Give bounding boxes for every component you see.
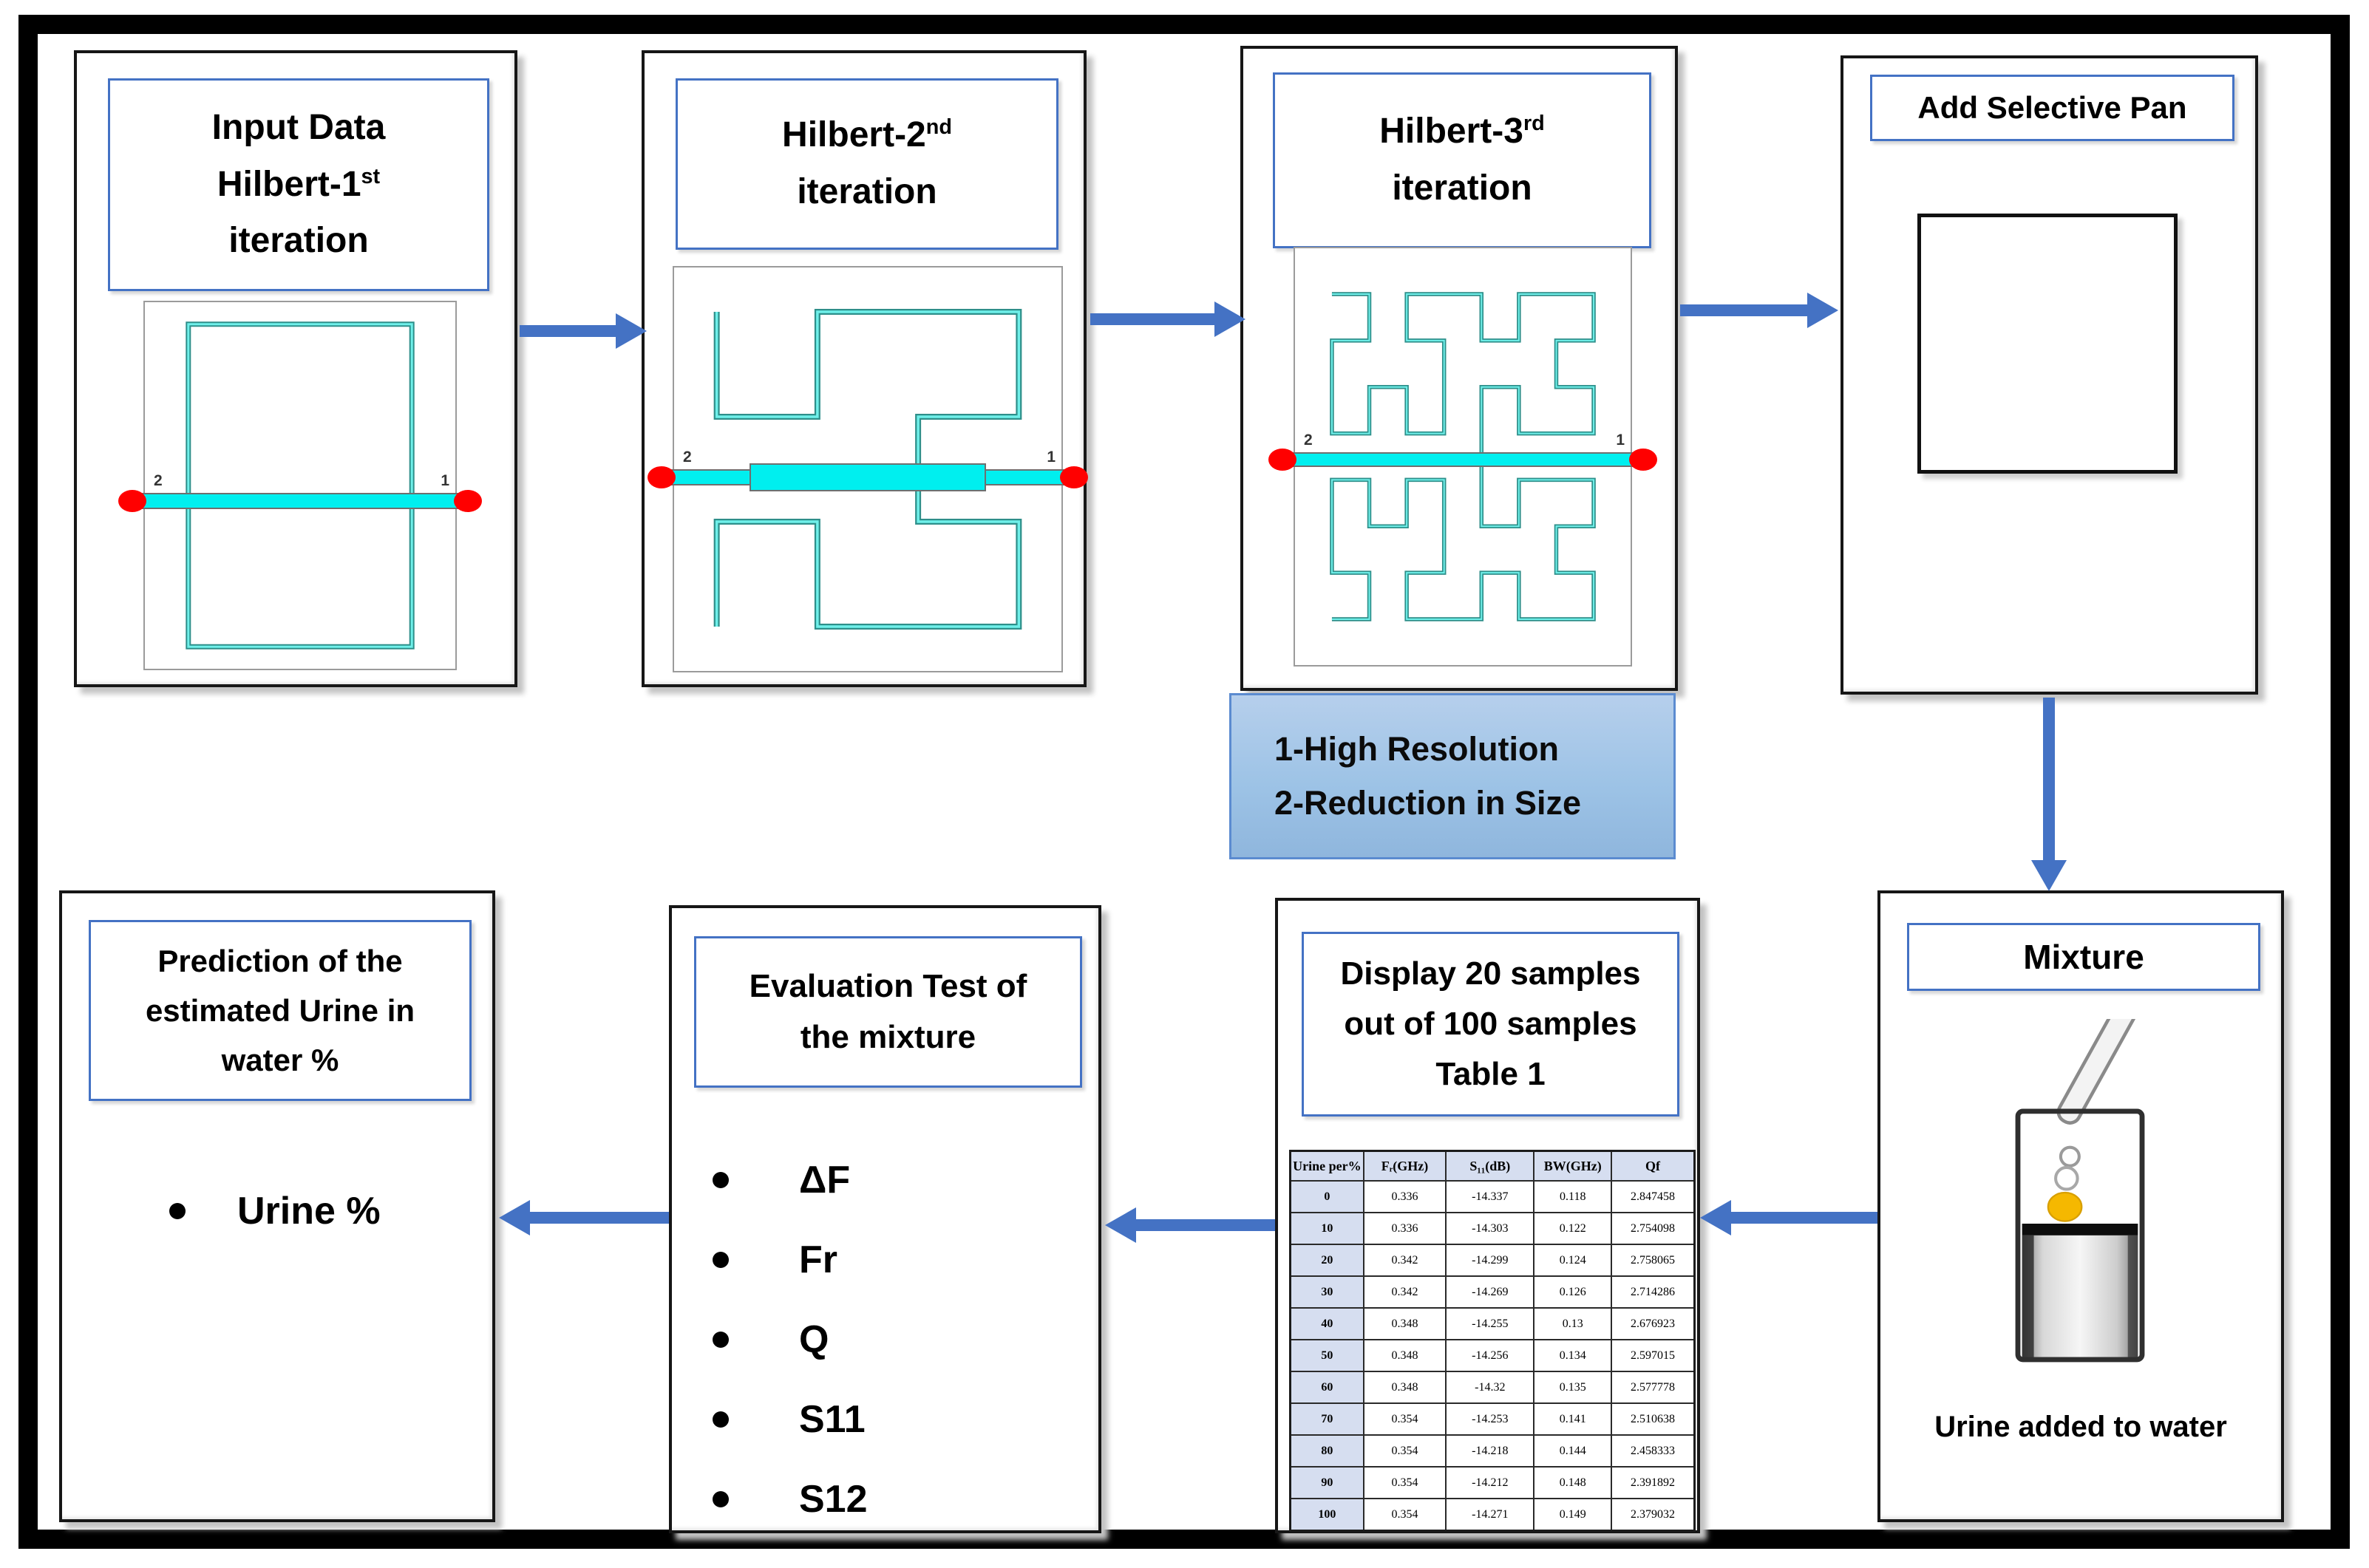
prediction-title: Prediction of the estimated Urine in wat… — [89, 920, 472, 1101]
list-item: Q — [713, 1318, 868, 1362]
table-cell: 0.149 — [1534, 1499, 1611, 1531]
list-item-label: Fr — [799, 1238, 837, 1282]
table-cell: 0.348 — [1364, 1340, 1446, 1371]
samples-title-line1: Display 20 samples — [1304, 949, 1677, 999]
port-dot-left — [648, 466, 676, 488]
table-cell: 0.348 — [1364, 1371, 1446, 1403]
table-cell: -14.255 — [1446, 1308, 1534, 1340]
flowchart-canvas: Input Data Hilbert-1st iteration 2 1 Hil… — [0, 0, 2369, 1568]
beaker-dropper-icon — [1988, 1019, 2172, 1366]
port-dot-right — [454, 490, 482, 512]
bullet-icon — [713, 1172, 729, 1188]
port-label-right: 1 — [1616, 432, 1625, 449]
table-cell: 40 — [1291, 1308, 1364, 1340]
hilbert1-trace-core — [188, 324, 412, 647]
step2-title-line2: iteration — [678, 164, 1056, 221]
list-item-label: Urine % — [237, 1189, 381, 1233]
hilbert1-trace-drawing — [145, 302, 455, 669]
prediction-title-line2: estimated Urine in — [91, 986, 469, 1035]
port-dot-left — [118, 490, 146, 512]
table-cell: 0.134 — [1534, 1340, 1611, 1371]
table-cell: 0 — [1291, 1181, 1364, 1213]
table-cell: 0.118 — [1534, 1181, 1611, 1213]
table-cell: 2.754098 — [1611, 1213, 1694, 1244]
step1-box: Input Data Hilbert-1st iteration 2 1 — [74, 50, 517, 687]
clear-drop — [2056, 1168, 2078, 1190]
table-header-cell: Fᵣ(GHz) — [1364, 1151, 1446, 1182]
hilbert2-antenna-panel: 2 1 — [673, 266, 1063, 672]
list-item: S12 — [713, 1477, 868, 1521]
list-item: Fr — [713, 1238, 868, 1282]
bullet-icon — [713, 1411, 729, 1428]
step3-title-line1: Hilbert-3rd — [1275, 103, 1649, 160]
step4-title: Add Selective Pan — [1870, 75, 2234, 141]
table-row: 500.348-14.2560.1342.597015 — [1291, 1340, 1695, 1371]
mixture-title: Mixture — [1907, 923, 2260, 991]
table-cell: 2.379032 — [1611, 1499, 1694, 1531]
liquid-shade-left — [2022, 1235, 2034, 1357]
note-line1: 1-High Resolution — [1274, 723, 1673, 777]
table-cell: 2.758065 — [1611, 1244, 1694, 1276]
table-cell: 0.354 — [1364, 1435, 1446, 1467]
table-cell: -14.337 — [1446, 1181, 1534, 1213]
table-cell: -14.303 — [1446, 1213, 1534, 1244]
table-cell: -14.218 — [1446, 1435, 1534, 1467]
list-item: ΔF — [713, 1158, 868, 1202]
step1-title-line2: Hilbert-1st — [110, 157, 487, 214]
port-label-right: 1 — [1047, 449, 1056, 466]
table-row: 900.354-14.2120.1482.391892 — [1291, 1467, 1695, 1499]
table-row: 1000.354-14.2710.1492.379032 — [1291, 1499, 1695, 1531]
table-cell: 0.135 — [1534, 1371, 1611, 1403]
evaluation-title-line1: Evaluation Test of — [696, 961, 1080, 1012]
prediction-list: Urine % — [169, 1189, 381, 1233]
hilbert3-antenna-panel: 2 1 — [1294, 247, 1632, 667]
urine-drop — [2048, 1193, 2081, 1221]
table-cell: 0.124 — [1534, 1244, 1611, 1276]
step3-note-box: 1-High Resolution 2-Reduction in Size — [1229, 693, 1676, 859]
prediction-title-line1: Prediction of the — [91, 936, 469, 986]
table-cell: 0.336 — [1364, 1213, 1446, 1244]
port-label-left: 2 — [154, 472, 163, 490]
samples-title-line3: Table 1 — [1304, 1049, 1677, 1100]
table-cell: -14.212 — [1446, 1467, 1534, 1499]
table-cell: 0.348 — [1364, 1308, 1446, 1340]
table-cell: 2.847458 — [1611, 1181, 1694, 1213]
list-item: Urine % — [169, 1189, 381, 1233]
step3-title-line2: iteration — [1275, 160, 1649, 217]
table-header-cell: Qf — [1611, 1151, 1694, 1182]
table-cell: 10 — [1291, 1213, 1364, 1244]
evaluation-title: Evaluation Test of the mixture — [694, 936, 1082, 1088]
liquid-shade-right — [2128, 1235, 2138, 1357]
liquid — [2022, 1235, 2138, 1357]
mixture-box: Mixture Urine added to water — [1877, 890, 2284, 1522]
ordinal-superscript: st — [361, 165, 381, 188]
evaluation-box: Evaluation Test of the mixture ΔF Fr Q S… — [669, 905, 1101, 1533]
table-cell: 2.510638 — [1611, 1403, 1694, 1435]
table-cell: -14.271 — [1446, 1499, 1534, 1531]
feed-line: 2 1 — [1283, 452, 1642, 467]
table-row: 700.354-14.2530.1412.510638 — [1291, 1403, 1695, 1435]
bullet-icon — [713, 1491, 729, 1507]
table-cell: 2.458333 — [1611, 1435, 1694, 1467]
table-cell: 2.714286 — [1611, 1276, 1694, 1308]
table-cell: -14.269 — [1446, 1276, 1534, 1308]
list-item-label: S12 — [799, 1477, 868, 1521]
ordinal-superscript: nd — [926, 115, 952, 139]
port-label-right: 1 — [441, 472, 449, 490]
step1-title-line1: Input Data — [110, 100, 487, 157]
step2-title-line1: Hilbert-2nd — [678, 107, 1056, 164]
step1-title: Input Data Hilbert-1st iteration — [108, 78, 489, 291]
step3-title: Hilbert-3rd iteration — [1273, 72, 1651, 248]
table-cell: 0.126 — [1534, 1276, 1611, 1308]
table-cell: -14.32 — [1446, 1371, 1534, 1403]
evaluation-title-line2: the mixture — [696, 1012, 1080, 1063]
hilbert1-trace-outline — [188, 324, 412, 647]
table-cell: 60 — [1291, 1371, 1364, 1403]
table-cell: 2.597015 — [1611, 1340, 1694, 1371]
table-cell: 2.577778 — [1611, 1371, 1694, 1403]
port-label-left: 2 — [1304, 432, 1313, 449]
table-header-cell: S₁₁(dB) — [1446, 1151, 1534, 1182]
samples-table: Urine per% Fᵣ(GHz) S₁₁(dB) BW(GHz) Qf 00… — [1289, 1150, 1696, 1532]
table-cell: 2.676923 — [1611, 1308, 1694, 1340]
samples-box: Display 20 samples out of 100 samples Ta… — [1275, 898, 1700, 1533]
step4-box: Add Selective Pan — [1841, 55, 2258, 695]
mixture-caption: Urine added to water — [1880, 1411, 2281, 1444]
table-cell: 0.122 — [1534, 1213, 1611, 1244]
prediction-title-line3: water % — [91, 1035, 469, 1085]
feed-line-wide-section — [750, 463, 986, 491]
step3-box: Hilbert-3rd iteration 2 1 — [1240, 46, 1678, 691]
feed-line: 2 1 — [662, 469, 1073, 485]
table-cell: 0.148 — [1534, 1467, 1611, 1499]
table-header-cell: BW(GHz) — [1534, 1151, 1611, 1182]
table-cell: 70 — [1291, 1403, 1364, 1435]
table-cell: 0.336 — [1364, 1181, 1446, 1213]
list-item: S11 — [713, 1397, 868, 1442]
step2-box: Hilbert-2nd iteration 2 1 — [642, 50, 1087, 687]
table-row: 00.336-14.3370.1182.847458 — [1291, 1181, 1695, 1213]
table-cell: 30 — [1291, 1276, 1364, 1308]
table-header-row: Urine per% Fᵣ(GHz) S₁₁(dB) BW(GHz) Qf — [1291, 1151, 1695, 1182]
table-cell: -14.253 — [1446, 1403, 1534, 1435]
table-cell: 2.391892 — [1611, 1467, 1694, 1499]
table-cell: 50 — [1291, 1340, 1364, 1371]
table-row: 200.342-14.2990.1242.758065 — [1291, 1244, 1695, 1276]
prediction-box: Prediction of the estimated Urine in wat… — [59, 890, 495, 1522]
note-line2: 2-Reduction in Size — [1274, 777, 1673, 831]
step2-title: Hilbert-2nd iteration — [676, 78, 1058, 250]
table-cell: 90 — [1291, 1467, 1364, 1499]
mixture-title-text: Mixture — [1909, 937, 2258, 977]
hilbert1-antenna-panel: 2 1 — [143, 301, 457, 670]
dropper-tip — [2061, 1148, 2079, 1166]
table-cell: 100 — [1291, 1499, 1364, 1531]
table-cell: 0.354 — [1364, 1467, 1446, 1499]
step1-title-line3: iteration — [110, 213, 487, 270]
list-item-label: Q — [799, 1318, 829, 1362]
port-dot-right — [1629, 449, 1657, 471]
table-cell: -14.256 — [1446, 1340, 1534, 1371]
table-row: 400.348-14.2550.132.676923 — [1291, 1308, 1695, 1340]
feed-line: 2 1 — [133, 493, 467, 509]
table-header-cell: Urine per% — [1291, 1151, 1364, 1182]
table-cell: 0.342 — [1364, 1244, 1446, 1276]
step4-title-text: Add Selective Pan — [1872, 90, 2232, 126]
selective-pan-square — [1917, 214, 2178, 474]
table-row: 100.336-14.3030.1222.754098 — [1291, 1213, 1695, 1244]
table-cell: 0.342 — [1364, 1276, 1446, 1308]
table-row: 300.342-14.2690.1262.714286 — [1291, 1276, 1695, 1308]
table-cell: 0.13 — [1534, 1308, 1611, 1340]
table-row: 800.354-14.2180.1442.458333 — [1291, 1435, 1695, 1467]
port-dot-left — [1268, 449, 1296, 471]
table-cell: 20 — [1291, 1244, 1364, 1276]
samples-title: Display 20 samples out of 100 samples Ta… — [1302, 932, 1679, 1117]
list-item-label: ΔF — [799, 1158, 850, 1202]
table-cell: 0.141 — [1534, 1403, 1611, 1435]
ordinal-superscript: rd — [1523, 112, 1545, 135]
waterline — [2022, 1224, 2138, 1235]
table-row: 600.348-14.320.1352.577778 — [1291, 1371, 1695, 1403]
table-cell: 80 — [1291, 1435, 1364, 1467]
bullet-icon — [713, 1332, 729, 1348]
samples-title-line2: out of 100 samples — [1304, 999, 1677, 1049]
table-cell: 0.354 — [1364, 1499, 1446, 1531]
table-cell: 0.144 — [1534, 1435, 1611, 1467]
table-cell: -14.299 — [1446, 1244, 1534, 1276]
evaluation-list: ΔF Fr Q S11 S12 — [713, 1122, 868, 1557]
list-item-label: S11 — [799, 1397, 866, 1442]
port-dot-right — [1060, 466, 1088, 488]
bullet-icon — [169, 1203, 186, 1219]
table-cell: 0.354 — [1364, 1403, 1446, 1435]
port-label-left: 2 — [683, 449, 692, 466]
bullet-icon — [713, 1252, 729, 1268]
